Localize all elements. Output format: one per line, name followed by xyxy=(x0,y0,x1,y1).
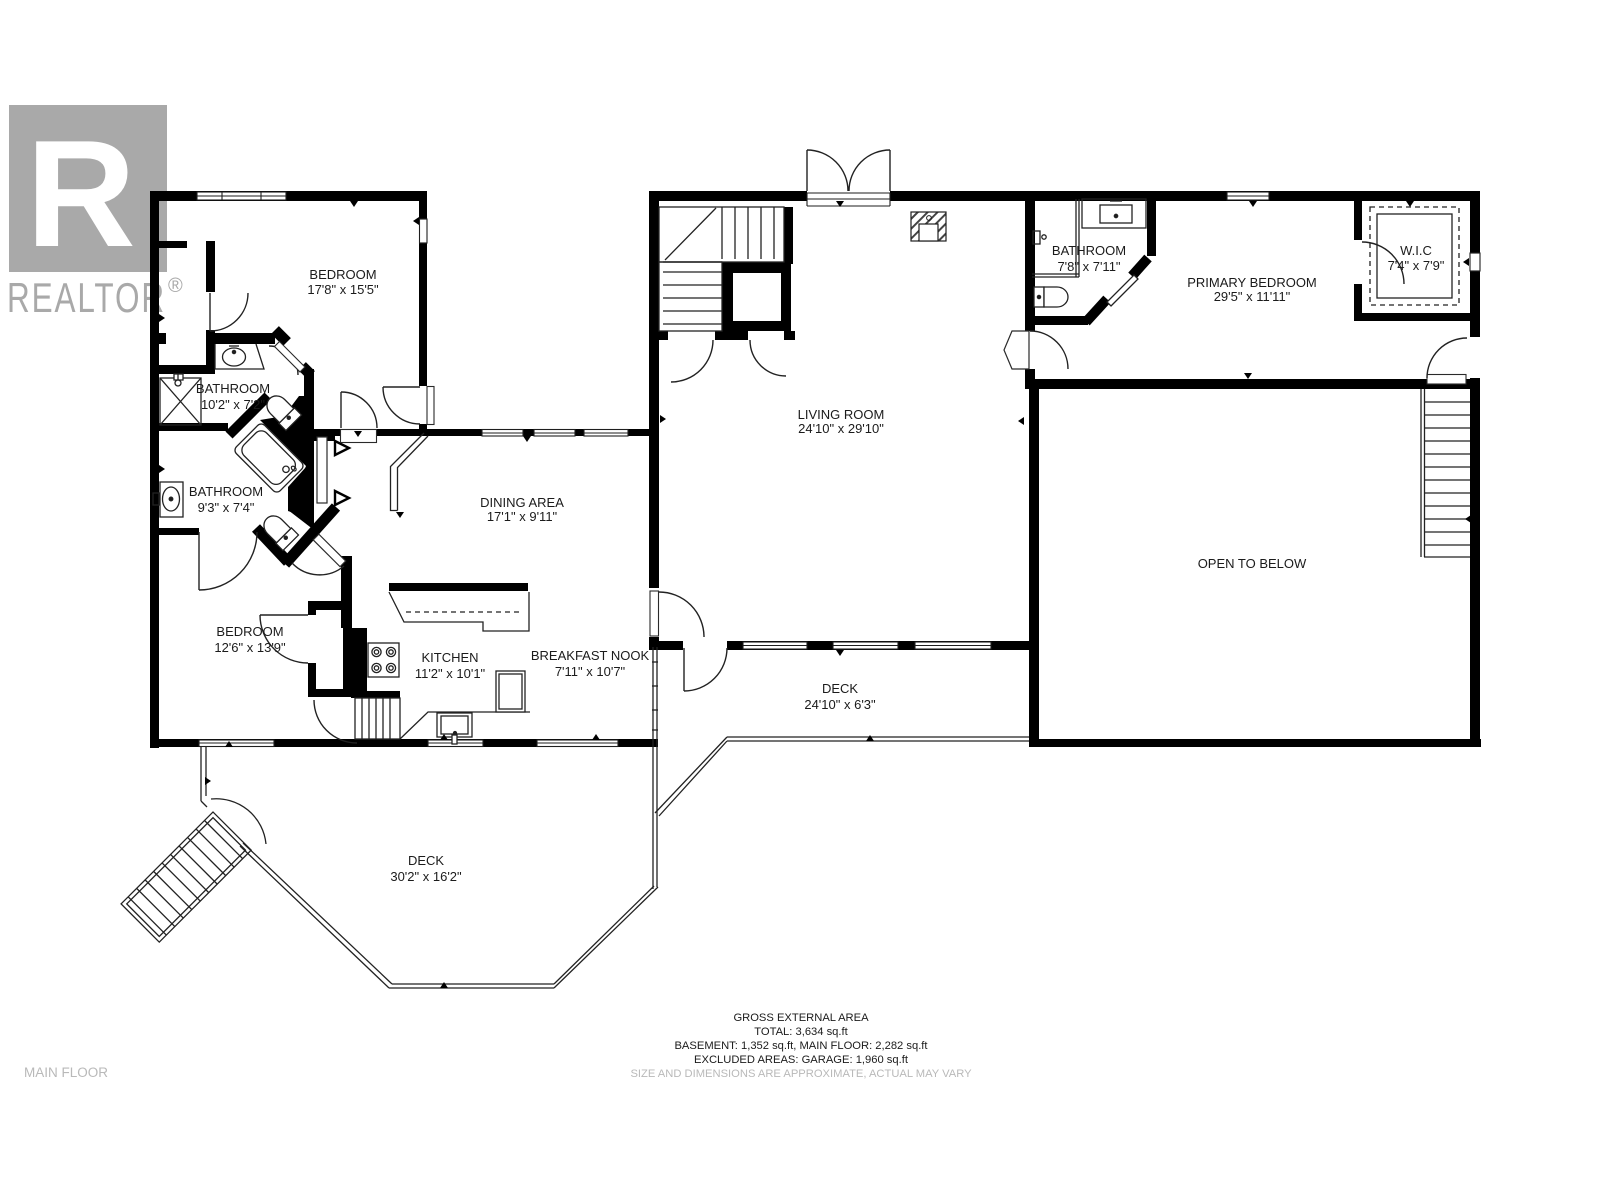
svg-text:DECK: DECK xyxy=(822,681,858,696)
svg-text:EXCLUDED AREAS: GARAGE: 1,960: EXCLUDED AREAS: GARAGE: 1,960 sq.ft xyxy=(694,1054,909,1066)
svg-text:17'8" x 15'5": 17'8" x 15'5" xyxy=(307,282,379,297)
svg-text:9'3" x 7'4": 9'3" x 7'4" xyxy=(198,500,255,515)
svg-text:BATHROOM: BATHROOM xyxy=(196,381,270,396)
svg-text:BATHROOM: BATHROOM xyxy=(189,484,263,499)
svg-text:BEDROOM: BEDROOM xyxy=(216,624,283,639)
svg-text:29'5" x 11'11": 29'5" x 11'11" xyxy=(1214,289,1291,304)
svg-text:BATHROOM: BATHROOM xyxy=(1052,243,1126,258)
svg-text:GROSS EXTERNAL AREA: GROSS EXTERNAL AREA xyxy=(733,1012,869,1024)
svg-text:30'2" x 16'2": 30'2" x 16'2" xyxy=(390,869,462,884)
svg-text:SIZE AND DIMENSIONS ARE APPROX: SIZE AND DIMENSIONS ARE APPROXIMATE, ACT… xyxy=(630,1068,972,1080)
svg-text:12'6" x 13'9": 12'6" x 13'9" xyxy=(214,640,286,655)
svg-text:11'2" x 10'1": 11'2" x 10'1" xyxy=(415,666,486,681)
svg-text:10'2" x 7'2": 10'2" x 7'2" xyxy=(201,397,265,412)
svg-text:24'10" x 29'10": 24'10" x 29'10" xyxy=(798,421,884,436)
svg-text:MAIN FLOOR: MAIN FLOOR xyxy=(24,1065,108,1080)
svg-text:7'8" x 7'11": 7'8" x 7'11" xyxy=(1057,259,1120,274)
svg-text:KITCHEN: KITCHEN xyxy=(421,650,478,665)
svg-text:7'4" x 7'9": 7'4" x 7'9" xyxy=(1388,258,1445,273)
svg-text:BASEMENT: 1,352 sq.ft, MAIN FL: BASEMENT: 1,352 sq.ft, MAIN FLOOR: 2,282… xyxy=(674,1040,928,1052)
svg-text:OPEN TO BELOW: OPEN TO BELOW xyxy=(1198,556,1307,571)
svg-text:BEDROOM: BEDROOM xyxy=(309,267,376,282)
svg-text:REALTOR: REALTOR xyxy=(7,274,166,322)
svg-text:LIVING ROOM: LIVING ROOM xyxy=(798,407,885,422)
svg-text:TOTAL: 3,634 sq.ft: TOTAL: 3,634 sq.ft xyxy=(754,1026,848,1038)
svg-text:7'11" x 10'7": 7'11" x 10'7" xyxy=(555,664,626,679)
svg-text:®: ® xyxy=(168,275,183,297)
svg-text:W.I.C: W.I.C xyxy=(1400,243,1432,258)
svg-text:DINING AREA: DINING AREA xyxy=(480,495,564,510)
svg-text:BREAKFAST NOOK: BREAKFAST NOOK xyxy=(531,648,650,663)
svg-text:17'1" x 9'11": 17'1" x 9'11" xyxy=(487,509,558,524)
svg-text:24'10" x 6'3": 24'10" x 6'3" xyxy=(804,697,876,712)
svg-text:R: R xyxy=(26,109,136,279)
svg-text:DECK: DECK xyxy=(408,853,444,868)
svg-text:PRIMARY BEDROOM: PRIMARY BEDROOM xyxy=(1187,275,1317,290)
